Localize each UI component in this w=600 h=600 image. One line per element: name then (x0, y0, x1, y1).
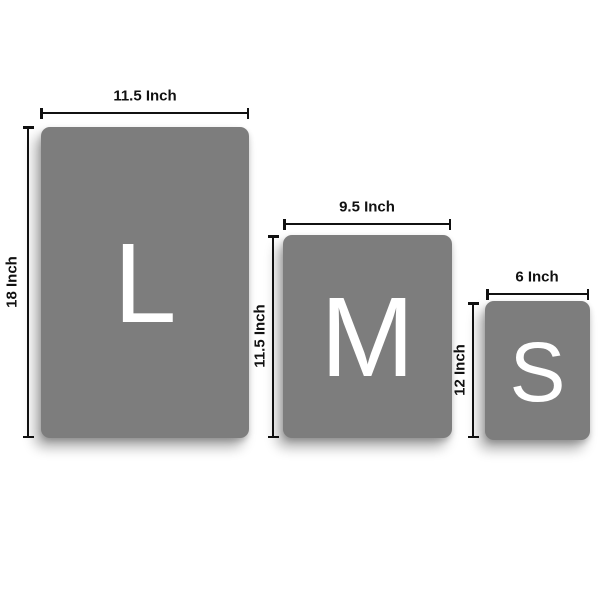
large-size-panel: L (41, 127, 249, 438)
large-height-dimension-line (27, 126, 29, 438)
small-height-label: 12 Inch (452, 344, 469, 396)
medium-size-panel: M (283, 235, 452, 438)
medium-width-label: 9.5 Inch (339, 199, 395, 216)
medium-height-label: 11.5 Inch (252, 304, 269, 367)
small-size-panel: S (485, 301, 590, 440)
large-width-dimension-line (40, 112, 249, 114)
medium-size-letter: M (320, 281, 414, 394)
small-width-dimension-line (486, 293, 589, 295)
medium-width-dimension-line (283, 223, 451, 225)
size-comparison-diagram: 11.5 Inch 18 Inch L 9.5 Inch 11.5 Inch M… (0, 0, 600, 600)
small-width-label: 6 Inch (515, 269, 558, 286)
small-size-letter: S (509, 329, 565, 413)
large-size-letter: L (114, 227, 177, 340)
small-height-dimension-line (472, 302, 474, 438)
large-height-label: 18 Inch (4, 256, 21, 308)
large-width-label: 11.5 Inch (113, 88, 176, 105)
medium-height-dimension-line (272, 235, 274, 438)
